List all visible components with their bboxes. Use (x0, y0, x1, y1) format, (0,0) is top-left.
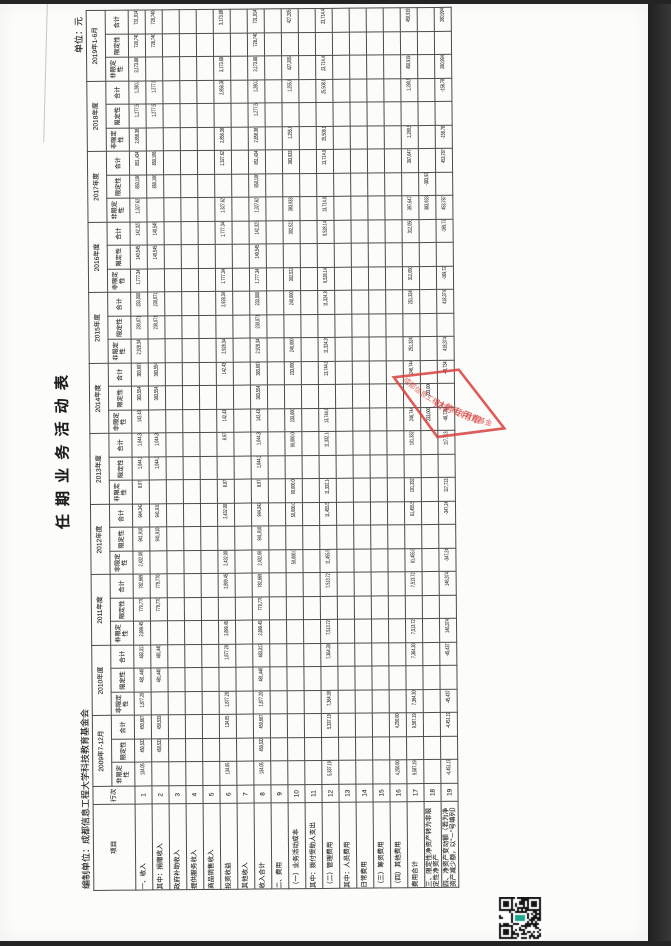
amount-value: 246,744.00 (409, 360, 415, 374)
amount-cell (334, 243, 351, 267)
amount-cell (232, 174, 249, 198)
amount-value: 140,545.88 (255, 244, 261, 258)
amount-cell (234, 503, 251, 527)
amount-cell: 383,933.00 (419, 196, 436, 220)
amount-cell: 2,858.38 (129, 128, 146, 152)
amount-cell (266, 268, 283, 292)
amount-cell (372, 666, 389, 690)
amount-cell: 941,910.00 (252, 526, 269, 550)
amount-cell (265, 150, 282, 174)
amount-value: 11,324.20 (324, 338, 330, 353)
amount-cell: 25,508.14 (316, 126, 333, 150)
subheader-cell: 合计 (108, 292, 131, 316)
amount-value: 50,000.00 (291, 503, 297, 518)
amount-cell: 1,044,333.03 (251, 456, 268, 480)
amount-value: 731,914.06 (253, 9, 259, 23)
amount-cell (338, 643, 355, 667)
amount-value: 142.43 (256, 409, 262, 421)
amount-value: 90,000.00 (291, 479, 297, 494)
amount-value: 1,877.20 (224, 645, 230, 660)
amount-value: -45,437.13 (446, 689, 452, 704)
amount-cell (186, 738, 203, 762)
amount-value: 7,513.72 (326, 620, 332, 635)
amount-cell (200, 480, 217, 504)
amount-cell (371, 596, 388, 620)
amount-cell: 1,877.20 (219, 644, 236, 668)
amount-cell (333, 79, 350, 103)
amount-cell: 2,899.45 (133, 621, 150, 645)
amount-cell (234, 456, 251, 480)
amount-cell (166, 504, 183, 528)
line-number: 16 (390, 784, 407, 802)
amount-cell (424, 736, 441, 760)
amount-value: 3,173.88 (219, 10, 225, 25)
amount-cell (336, 432, 353, 456)
amount-cell: 1,877.20 (134, 692, 151, 716)
amount-cell (165, 292, 182, 316)
amount-cell (438, 454, 455, 478)
amount-cell (385, 196, 402, 220)
amount-value: 1,280,549.12 (407, 125, 413, 138)
amount-cell: 2,928.34 (131, 339, 148, 363)
amount-cell (283, 173, 300, 197)
amount-value: 11,455.58 (325, 549, 331, 564)
amount-cell: 1,777.34 (249, 268, 266, 292)
subheader-cell: 限定性 (107, 175, 130, 199)
amount-value: 427,205.49 (287, 9, 293, 23)
amount-value: 23,714.43 (321, 9, 327, 24)
amount-value: 453,787.35 (441, 196, 447, 210)
amount-cell (303, 596, 320, 620)
amount-cell (417, 8, 434, 32)
amount-cell (197, 151, 214, 175)
amount-cell (165, 316, 182, 340)
amount-value: 418,374.47 (442, 337, 448, 351)
amount-value: 8.97 (138, 481, 144, 488)
amount-value: 1,877.20 (259, 691, 265, 706)
amount-cell (421, 454, 438, 478)
amount-value: 450,667.55 (140, 715, 146, 729)
amount-value: 7,364.30 (412, 690, 418, 705)
amount-cell: 3,173.88 (213, 9, 230, 33)
amount-cell (369, 314, 386, 338)
amount-cell (421, 501, 438, 525)
amount-value: 8.97 (257, 480, 263, 487)
amount-cell (264, 32, 281, 56)
amount-cell (405, 525, 422, 549)
amount-cell (182, 292, 199, 316)
amount-cell: 246,744.00 (404, 407, 421, 431)
amount-cell (371, 619, 388, 643)
amount-cell (232, 197, 249, 221)
amount-cell: 450,533.50 (151, 715, 168, 739)
amount-cell (231, 103, 248, 127)
amount-cell: 11,332.14 (319, 432, 336, 456)
amount-cell (213, 33, 230, 57)
amount-value: 4,250.00 (395, 714, 401, 729)
amount-value: 728,740.18 (134, 34, 140, 48)
amount-cell (199, 339, 216, 363)
amount-cell (231, 56, 248, 80)
amount-cell (338, 690, 355, 714)
subheader-cell: 限定性 (112, 739, 135, 763)
amount-cell: 142,323.22 (249, 221, 266, 245)
subheader-cell: 非限定性 (112, 763, 135, 787)
amount-cell (335, 361, 352, 385)
amount-value: -48,734.43 (443, 407, 449, 422)
amount-cell (233, 291, 250, 315)
amount-value: 2,432.00 (257, 550, 263, 565)
subheader-cell: 非限定性 (110, 622, 133, 646)
amount-value: 383,933.00 (288, 197, 294, 211)
amount-cell: 7,364.30 (406, 690, 423, 714)
amount-value: -48,734.43 (443, 360, 449, 375)
amount-cell: 481,440.15 (134, 668, 151, 692)
amount-cell: 731,914.06 (128, 10, 145, 34)
amount-cell (168, 645, 185, 669)
subheader-cell: 非限定性 (106, 128, 129, 152)
amount-cell: 2,858.38 (214, 127, 231, 151)
amount-cell: 9,587.19 (407, 760, 424, 784)
activities-table: 项目行次2009年7-12月2010年度2011年度2012年度2013年度20… (86, 7, 460, 891)
amount-cell (215, 245, 232, 269)
amount-cell (353, 431, 370, 455)
amount-cell (386, 290, 403, 314)
amount-cell (230, 33, 247, 57)
amount-value: 13,744.00 (324, 408, 330, 423)
amount-cell (162, 10, 179, 34)
amount-cell (420, 337, 437, 361)
amount-cell (369, 361, 386, 385)
amount-value: 101,332.14 (409, 431, 415, 445)
amount-value: 779,770.00 (156, 598, 162, 612)
amount-value: 2,899.45 (224, 621, 230, 636)
amount-value: -383,933.00 (424, 172, 430, 186)
amount-cell (352, 337, 369, 361)
amount-value: -169,726.92 (441, 219, 447, 233)
amount-value: 134.05 (225, 762, 231, 774)
amount-cell: 418,374.47 (437, 290, 454, 314)
amount-value: 61,455.58 (410, 501, 416, 516)
amount-cell: 140,545.88 (147, 222, 164, 246)
amount-cell (337, 549, 354, 573)
amount-cell (386, 361, 403, 385)
amount-cell (148, 339, 165, 363)
line-number: 1 (135, 786, 152, 804)
amount-cell (355, 713, 372, 737)
amount-value: 728,740.18 (151, 10, 157, 24)
amount-cell (233, 362, 250, 386)
amount-value: 140,545.88 (153, 245, 159, 259)
amount-cell (385, 243, 402, 267)
amount-cell: 251,324.20 (403, 337, 420, 361)
amount-cell: 1,044,342.00 (251, 432, 268, 456)
amount-value: 450,533.50 (140, 739, 146, 753)
amount-value: 13,714.02 (322, 150, 328, 165)
amount-value: 4,250.00 (395, 761, 401, 776)
amount-cell (387, 431, 404, 455)
amount-cell (179, 33, 196, 57)
row-label: 二、费用 (271, 803, 289, 889)
amount-value: -347,243.43 (444, 548, 450, 562)
amount-cell (185, 668, 202, 692)
amount-cell (269, 597, 286, 621)
amount-cell: 230,071.66 (148, 316, 165, 340)
amount-cell: 782,669.45 (133, 574, 150, 598)
amount-cell: 240,000.00 (284, 291, 301, 315)
amount-value: 1,777.34 (136, 269, 142, 284)
amount-value: 450,919.92 (406, 8, 412, 22)
unit-label: 单位：元 (72, 17, 86, 53)
amount-cell (180, 80, 197, 104)
amount-value: 2,899.45 (224, 574, 230, 589)
line-number: 10 (288, 785, 305, 803)
line-number: 12 (322, 784, 339, 802)
amount-value: 134.05 (140, 763, 146, 775)
amount-value: 1,327.62 (135, 199, 141, 214)
amount-value: 2,432.00 (138, 551, 144, 566)
line-number: 4 (186, 785, 203, 803)
amount-value: -45,437.13 (445, 642, 451, 657)
amount-cell (230, 9, 247, 33)
amount-cell (199, 292, 216, 316)
amount-cell (301, 361, 318, 385)
amount-cell (332, 8, 349, 32)
amount-cell (419, 243, 436, 267)
amount-cell (353, 502, 370, 526)
amount-value: 2,928.34 (256, 339, 262, 354)
amount-cell: 4,250.00 (390, 760, 407, 784)
amount-cell (270, 714, 287, 738)
amount-cell: 1,877.20 (219, 691, 236, 715)
amount-cell: 2,899.45 (218, 621, 235, 645)
amount-value: 1,777.34 (255, 268, 261, 283)
amount-value: 941,910.00 (257, 526, 263, 540)
amount-value: 1,044,333.03 (137, 457, 143, 470)
amount-cell (319, 455, 336, 479)
amount-value: 851,434.37 (135, 151, 141, 165)
amount-cell: 1,280,391.34 (129, 81, 146, 105)
amount-cell (286, 526, 303, 550)
amount-cell (336, 479, 353, 503)
amount-cell (269, 573, 286, 597)
amount-value: 1,280,391.34 (134, 81, 140, 94)
amount-cell (355, 690, 372, 714)
amount-cell (366, 32, 383, 56)
amount-value: -233,000.00 (426, 384, 432, 398)
amount-cell (388, 525, 405, 549)
amount-value: 450,533.50 (259, 738, 265, 752)
subheader-cell: 合计 (108, 363, 131, 387)
amount-cell: 481,440.15 (253, 667, 270, 691)
amount-cell (388, 619, 405, 643)
amount-value: 251,324.20 (408, 337, 414, 351)
amount-cell (439, 595, 456, 619)
amount-cell (301, 314, 318, 338)
amount-cell: 1,277,532.96 (248, 103, 265, 127)
amount-value: 1,877.20 (140, 692, 146, 707)
amount-cell (334, 220, 351, 244)
amount-cell (373, 760, 390, 784)
amount-cell (197, 80, 214, 104)
amount-value: 7,513.72 (411, 620, 417, 635)
amount-value: 453,787.35 (441, 149, 447, 163)
amount-cell: 146,374.47 (439, 619, 456, 643)
amount-value: 7,513.72 (411, 573, 417, 588)
amount-cell (418, 125, 435, 149)
amount-value: 230,071.66 (153, 316, 159, 330)
amount-cell (181, 268, 198, 292)
row-label: 政府补助收入 (169, 804, 187, 890)
amount-value: 383,554.99 (137, 386, 143, 400)
amount-cell (368, 267, 385, 291)
line-number: 6 (220, 785, 237, 803)
amount-cell (299, 56, 316, 80)
amount-cell (162, 33, 179, 57)
amount-cell (299, 103, 316, 127)
amount-cell (335, 314, 352, 338)
amount-value: 3,173.88 (134, 58, 140, 73)
amount-cell (168, 715, 185, 739)
amount-cell: 450,667.55 (253, 714, 270, 738)
amount-cell: 1,877.20 (253, 691, 270, 715)
amount-cell (384, 149, 401, 173)
amount-cell (270, 667, 287, 691)
amount-cell (200, 409, 217, 433)
amount-cell: 944,342.00 (132, 504, 149, 528)
row-label: 其中：捐赠收入 (152, 804, 170, 890)
amount-cell (231, 127, 248, 151)
amount-cell (349, 8, 366, 32)
amount-cell: 941,910.00 (133, 527, 150, 551)
amount-cell (335, 338, 352, 362)
amount-cell (216, 315, 233, 339)
amount-cell (420, 313, 437, 337)
amount-cell: 240,000.00 (284, 338, 301, 362)
subheader-cell: 非限定性 (110, 551, 133, 575)
amount-cell (318, 385, 335, 409)
amount-cell: 851,434.37 (129, 151, 146, 175)
amount-cell (302, 432, 319, 456)
amount-cell (146, 128, 163, 152)
amount-cell (390, 737, 407, 761)
amount-cell: 2,928.34 (250, 338, 267, 362)
amount-cell (268, 409, 285, 433)
subheader-cell: 非限定性 (111, 692, 134, 716)
amount-cell (423, 666, 440, 690)
amount-cell (199, 315, 216, 339)
line-number: 11 (305, 784, 322, 802)
amount-cell (434, 31, 451, 55)
amount-cell: 1,044,333.03 (149, 433, 166, 457)
amount-cell (288, 738, 305, 762)
subheader-cell: 非限定性 (109, 481, 132, 505)
amount-cell: 7,364.30 (406, 643, 423, 667)
amount-cell (163, 151, 180, 175)
amount-cell (180, 151, 197, 175)
amount-cell: 397,647.02 (402, 196, 419, 220)
amount-cell (167, 621, 184, 645)
amount-cell (436, 243, 453, 267)
amount-cell (265, 103, 282, 127)
amount-cell (332, 32, 349, 56)
amount-cell (355, 666, 372, 690)
amount-cell: 2,432.00 (133, 551, 150, 575)
amount-cell: -158.78 (435, 125, 452, 149)
amount-cell: 50,000.00 (285, 503, 302, 527)
amount-cell: 230,071.66 (250, 315, 267, 339)
amount-cell (421, 431, 438, 455)
amount-cell (202, 691, 219, 715)
amount-cell (202, 668, 219, 692)
amount-value: 230,071.66 (136, 316, 142, 330)
amount-value: 3,173.88 (219, 57, 225, 72)
amount-cell (419, 266, 436, 290)
amount-cell: 383,933.00 (282, 150, 299, 174)
amount-value: 2,858.38 (254, 127, 260, 142)
amount-value: 1,327.62 (254, 198, 260, 213)
amount-cell (214, 103, 231, 127)
amount-value: 383,554.99 (154, 386, 160, 400)
amount-cell (315, 32, 332, 56)
amount-value: 251,324.20 (408, 290, 414, 304)
amount-value: -158.78 (440, 79, 446, 92)
amount-cell (287, 714, 304, 738)
row-label: （四）其他费用 (390, 802, 408, 888)
amount-cell (417, 31, 434, 55)
amount-cell (372, 713, 389, 737)
amount-cell (302, 502, 319, 526)
amount-cell (266, 244, 283, 268)
row-label: 收入合计 (254, 803, 272, 889)
amount-cell: 427,205.49 (282, 56, 299, 80)
amount-cell (337, 620, 354, 644)
year-header: 2013年度 (90, 434, 110, 505)
amount-value: 140,545.88 (152, 222, 158, 236)
amount-cell (180, 127, 197, 151)
amount-cell: 140,545.88 (130, 245, 147, 269)
amount-cell (303, 549, 320, 573)
amount-value: 1,044,333.03 (154, 433, 160, 446)
amount-cell (353, 408, 370, 432)
amount-cell: 134.05 (220, 762, 237, 786)
amount-cell (182, 339, 199, 363)
amount-cell (169, 762, 186, 786)
amount-value: 312,050.14 (407, 219, 413, 233)
amount-cell: 383,554.99 (131, 386, 148, 410)
amount-cell: 1,044,333.03 (132, 457, 149, 481)
amount-value: 280,994.14 (440, 8, 446, 22)
amount-cell (404, 454, 421, 478)
amount-cell: 1,044,333.03 (149, 457, 166, 481)
amount-cell (322, 737, 339, 761)
amount-cell: -347,243.43 (439, 548, 456, 572)
amount-cell (268, 503, 285, 527)
amount-cell (423, 689, 440, 713)
amount-cell: 2,858.38 (248, 127, 265, 151)
amount-cell (406, 666, 423, 690)
amount-value: 233,000.00 (255, 291, 261, 305)
row-label: 其中：人员费用 (339, 802, 357, 888)
amount-cell (166, 457, 183, 481)
amount-value: 7,364.30 (326, 644, 332, 659)
year-header: 2016年度 (88, 222, 108, 293)
amount-cell (383, 31, 400, 55)
subheader-cell: 限定性 (106, 104, 129, 128)
amount-value: 9,587.19 (412, 761, 418, 776)
amount-cell (371, 525, 388, 549)
amount-cell: 1,255,040.98 (282, 79, 299, 103)
